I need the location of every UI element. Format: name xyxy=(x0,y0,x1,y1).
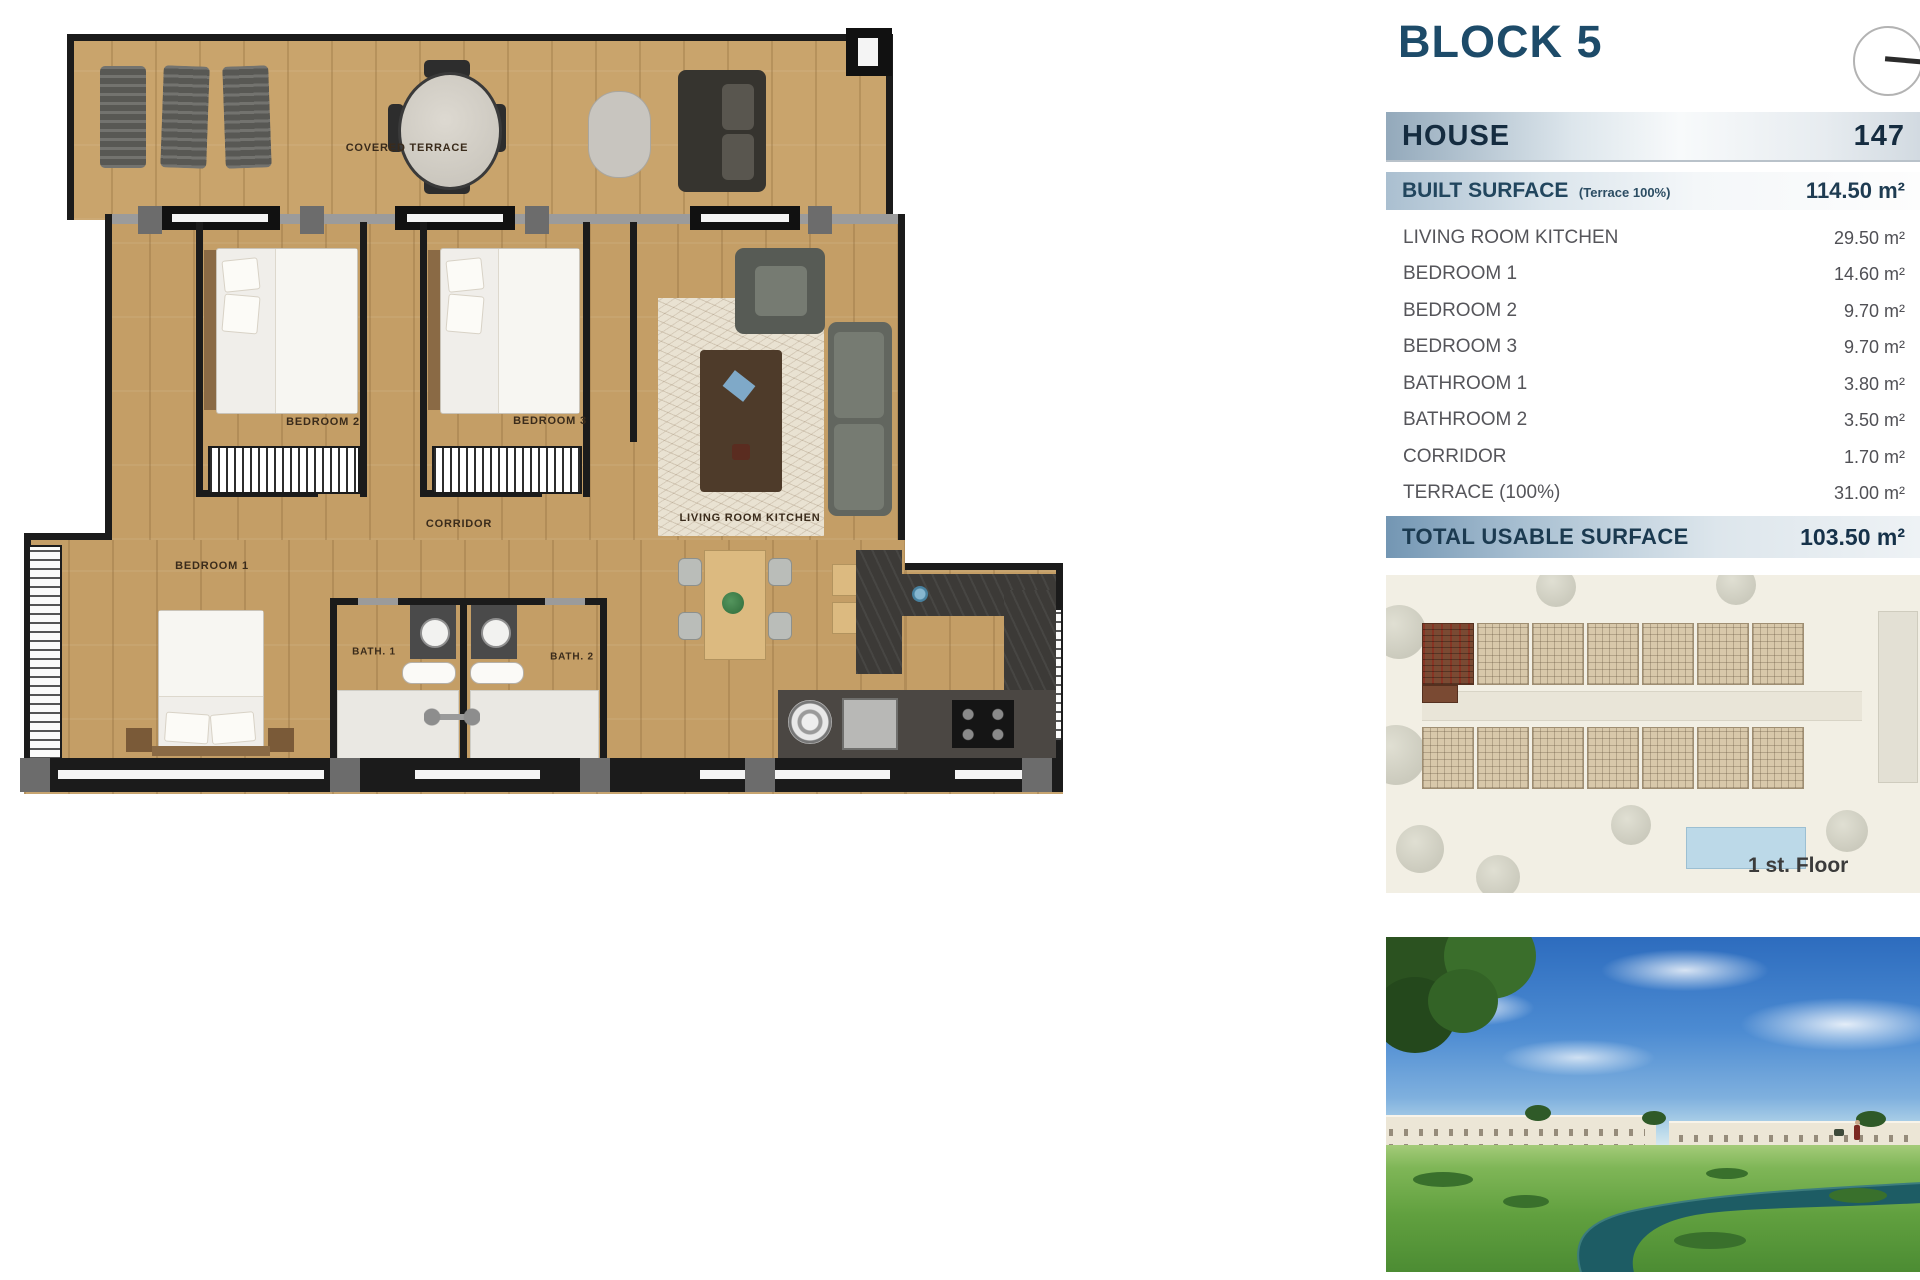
built-surface-row: BUILT SURFACE (Terrace 100%) 114.50 m² xyxy=(1386,172,1920,210)
room-row-value: 31.00 m² xyxy=(1834,483,1905,504)
bar-stool xyxy=(832,602,858,634)
tree-icon xyxy=(1716,575,1756,605)
building-row-bottom xyxy=(1422,727,1804,789)
wall-pillar xyxy=(1022,758,1052,792)
wall xyxy=(460,605,467,762)
total-value: 103.50 m² xyxy=(1800,524,1905,551)
window-slit xyxy=(701,214,789,222)
unit xyxy=(1422,727,1474,789)
kitchen-counter xyxy=(856,550,902,674)
block-title: BLOCK 5 xyxy=(1398,16,1603,68)
tree-icon xyxy=(1386,725,1426,785)
stove xyxy=(952,700,1014,748)
unit xyxy=(1477,623,1529,685)
site-plan: 1 st. Floor xyxy=(1386,575,1920,893)
terrace-table xyxy=(398,72,502,190)
wall-marker-slit xyxy=(858,38,878,66)
pillow xyxy=(221,257,260,293)
wall xyxy=(330,598,337,762)
river xyxy=(1386,1145,1920,1272)
table-item xyxy=(732,444,750,460)
dining-chair xyxy=(678,612,702,640)
unit xyxy=(1697,727,1749,789)
kitchen-sink xyxy=(912,586,928,602)
duvet xyxy=(275,249,357,413)
room-label-bedroom3: BEDROOM 3 xyxy=(513,415,587,427)
window-slit xyxy=(955,770,1025,779)
road xyxy=(1422,691,1862,721)
golfer xyxy=(1854,1125,1860,1140)
towel-rail xyxy=(424,700,480,734)
door xyxy=(545,598,585,605)
house-number: 147 xyxy=(1854,120,1905,153)
pillow xyxy=(445,294,484,335)
room-row-value: 3.80 m² xyxy=(1844,374,1905,395)
terrace-rug xyxy=(588,91,651,178)
window-slit xyxy=(172,214,268,222)
wall-pillar xyxy=(808,206,832,234)
room-label-bedroom2: BEDROOM 2 xyxy=(286,416,360,428)
room-row: BATHROOM 1 3.80 m² xyxy=(1386,366,1920,402)
bar-stool xyxy=(832,564,858,596)
oven xyxy=(842,698,898,750)
tree-foliage xyxy=(1428,969,1498,1033)
sofa-cushion xyxy=(722,134,754,180)
window-slit xyxy=(58,770,324,779)
wall xyxy=(420,222,427,497)
room-row-label: BATHROOM 2 xyxy=(1403,409,1527,431)
room-row: BATHROOM 2 3.50 m² xyxy=(1386,402,1920,438)
golf-cart xyxy=(1834,1129,1844,1136)
room-row-label: BEDROOM 1 xyxy=(1403,263,1517,285)
wall-pillar xyxy=(138,206,162,234)
wall xyxy=(583,222,590,497)
unit xyxy=(1587,727,1639,789)
bed-bedroom2 xyxy=(216,248,358,414)
room-row-value: 14.60 m² xyxy=(1834,264,1905,285)
dining-chair xyxy=(768,612,792,640)
dining-chair xyxy=(768,558,792,586)
duvet xyxy=(159,611,263,697)
wall-pillar xyxy=(330,758,360,792)
unit-highlight-tab xyxy=(1422,685,1458,703)
north-indicator-icon xyxy=(1853,26,1920,96)
unit xyxy=(1697,623,1749,685)
room-row-value: 29.50 m² xyxy=(1834,228,1905,249)
wall xyxy=(105,214,112,540)
dining-chair xyxy=(678,558,702,586)
room-row-label: BEDROOM 2 xyxy=(1403,300,1517,322)
sun-lounger xyxy=(222,65,272,169)
sink xyxy=(481,618,511,648)
tree-icon xyxy=(1386,605,1426,659)
bush xyxy=(1674,1232,1746,1249)
toilet xyxy=(470,662,524,684)
room-row: BEDROOM 3 9.70 m² xyxy=(1386,329,1920,365)
room-row-value: 9.70 m² xyxy=(1844,337,1905,358)
room-row: CORRIDOR 1.70 m² xyxy=(1386,439,1920,475)
room-row-value: 3.50 m² xyxy=(1844,410,1905,431)
window-blind xyxy=(28,545,62,761)
palm-icon xyxy=(1525,1105,1551,1121)
room-label-bath1: BATH. 1 xyxy=(352,647,396,658)
unit xyxy=(1532,727,1584,789)
bed-bedroom3 xyxy=(440,248,580,414)
wall-pillar xyxy=(525,206,549,234)
room-label-bedroom1: BEDROOM 1 xyxy=(175,560,249,572)
wardrobe xyxy=(432,446,582,494)
window-slit xyxy=(407,214,503,222)
bush xyxy=(1413,1172,1473,1187)
bed-headboard xyxy=(428,250,440,410)
unit xyxy=(1532,623,1584,685)
room-row-label: BEDROOM 3 xyxy=(1403,336,1517,358)
wall xyxy=(67,34,893,41)
house-label: HOUSE xyxy=(1402,120,1510,153)
pillow xyxy=(221,294,260,335)
tree-icon xyxy=(1611,805,1651,845)
wall xyxy=(24,533,112,540)
wall xyxy=(898,214,905,540)
wall-pillar xyxy=(300,206,324,234)
door xyxy=(358,598,398,605)
wall xyxy=(905,563,1063,570)
room-row: BEDROOM 2 9.70 m² xyxy=(1386,293,1920,329)
total-label: TOTAL USABLE SURFACE xyxy=(1402,524,1689,550)
nightstand xyxy=(126,728,152,752)
bed-bedroom1 xyxy=(158,610,264,754)
wall xyxy=(630,222,637,442)
north-needle xyxy=(1885,57,1920,66)
floor-plan: COVERED TERRACE BEDROOM 2 BEDROOM 3 CORR… xyxy=(0,0,1130,800)
toilet xyxy=(402,662,456,684)
unit xyxy=(1752,727,1804,789)
house-header-bar: HOUSE 147 xyxy=(1386,112,1920,162)
armchair-cushion xyxy=(755,266,807,316)
wardrobe xyxy=(208,446,360,494)
bed-headboard xyxy=(152,746,270,756)
room-row-label: CORRIDOR xyxy=(1403,446,1506,468)
neighbor-building xyxy=(1878,611,1918,783)
bath-floor xyxy=(470,690,599,762)
window-slit xyxy=(700,770,890,779)
bush xyxy=(1503,1195,1549,1208)
unit xyxy=(1477,727,1529,789)
window-slit xyxy=(415,770,540,779)
wall-pillar xyxy=(745,758,775,792)
unit xyxy=(1587,623,1639,685)
building-floor-line xyxy=(1389,1129,1644,1136)
duvet xyxy=(498,249,579,413)
sofa-cushion xyxy=(834,424,884,510)
room-label-corridor: CORRIDOR xyxy=(426,518,492,530)
wall xyxy=(600,598,607,762)
tree-icon xyxy=(1396,825,1444,873)
wall-pillar xyxy=(580,758,610,792)
sofa-cushion xyxy=(722,84,754,130)
room-row: TERRACE (100%) 31.00 m² xyxy=(1386,475,1920,511)
tree-icon xyxy=(1476,855,1520,893)
built-surface-note: (Terrace 100%) xyxy=(1579,185,1671,200)
bed-headboard xyxy=(204,250,216,410)
pillow xyxy=(164,712,210,745)
wall xyxy=(360,222,367,497)
room-label-living: LIVING ROOM KITCHEN xyxy=(679,512,820,524)
built-surface-label: BUILT SURFACE xyxy=(1402,179,1568,202)
plant xyxy=(722,592,744,614)
total-surface-bar: TOTAL USABLE SURFACE 103.50 m² xyxy=(1386,516,1920,558)
exterior-photo xyxy=(1386,937,1920,1272)
floor-caption: 1 st. Floor xyxy=(1748,854,1848,878)
sink xyxy=(420,618,450,648)
room-row-value: 9.70 m² xyxy=(1844,301,1905,322)
room-row-value: 1.70 m² xyxy=(1844,447,1905,468)
unit xyxy=(1642,623,1694,685)
sofa-cushion xyxy=(834,332,884,418)
room-row-label: BATHROOM 1 xyxy=(1403,373,1527,395)
unit xyxy=(1642,727,1694,789)
built-surface-label-group: BUILT SURFACE (Terrace 100%) xyxy=(1402,179,1670,203)
sun-lounger xyxy=(100,66,146,168)
washer xyxy=(788,700,832,744)
sun-lounger xyxy=(160,65,210,169)
wall xyxy=(196,222,203,497)
building-row-top xyxy=(1422,623,1804,685)
pillow xyxy=(445,257,484,293)
room-row-label: LIVING ROOM KITCHEN xyxy=(1403,227,1618,249)
building-floor-line xyxy=(1679,1135,1915,1142)
built-surface-value: 114.50 m² xyxy=(1806,178,1905,204)
room-row: BEDROOM 1 14.60 m² xyxy=(1386,256,1920,292)
unit-highlighted[interactable] xyxy=(1422,623,1474,685)
tree-icon xyxy=(1536,575,1576,607)
wall-pillar xyxy=(20,758,50,792)
wall xyxy=(67,34,74,220)
room-label-covered-terrace: COVERED TERRACE xyxy=(346,142,469,154)
nightstand xyxy=(268,728,294,752)
pillow xyxy=(210,711,256,745)
unit xyxy=(1752,623,1804,685)
room-row: LIVING ROOM KITCHEN 29.50 m² xyxy=(1386,220,1920,256)
tree-icon xyxy=(1826,810,1868,852)
coffee-table xyxy=(700,350,782,492)
room-row-label: TERRACE (100%) xyxy=(1403,482,1560,504)
room-label-bath2: BATH. 2 xyxy=(550,652,594,663)
spec-panel: BLOCK 5 HOUSE 147 BUILT SURFACE (Terrace… xyxy=(1386,0,1920,1280)
